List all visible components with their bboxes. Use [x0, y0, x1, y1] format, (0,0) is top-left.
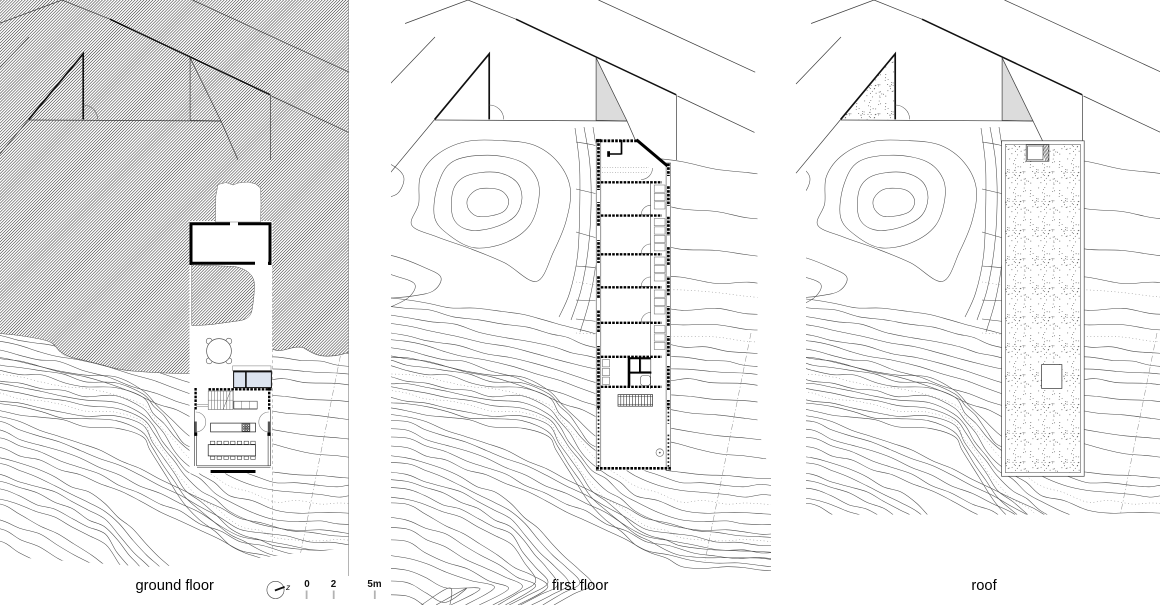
svg-text:ground floor: ground floor: [136, 578, 214, 594]
svg-text:z: z: [285, 582, 291, 592]
svg-text:0: 0: [304, 579, 310, 590]
svg-text:2: 2: [331, 579, 337, 590]
svg-text:roof: roof: [971, 578, 997, 594]
svg-text:5m: 5m: [367, 579, 381, 590]
svg-text:first floor: first floor: [552, 578, 608, 594]
